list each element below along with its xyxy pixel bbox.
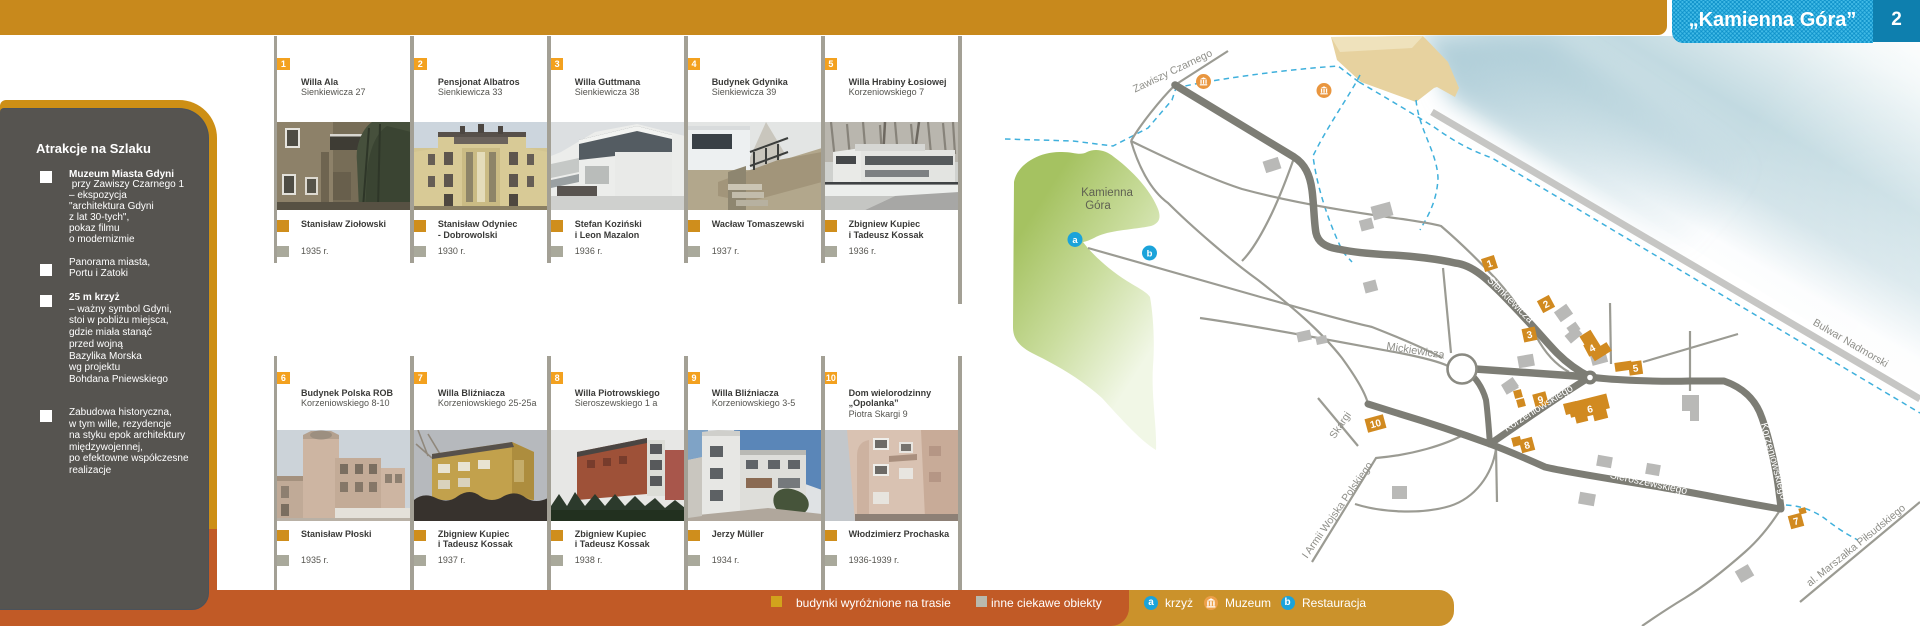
svg-text:Kamienna: Kamienna: [1081, 187, 1133, 199]
svg-text:Sienkiewicza: Sienkiewicza: [1484, 274, 1536, 326]
svg-text:al. Marszałka Piłsudskiego: al. Marszałka Piłsudskiego: [1804, 502, 1908, 589]
svg-text:a: a: [1072, 235, 1078, 246]
svg-text:Góra: Góra: [1085, 200, 1111, 212]
svg-text:I Armii Wojska Polskiego: I Armii Wojska Polskiego: [1300, 460, 1376, 561]
svg-text:Korzeniowskiego: Korzeniowskiego: [1758, 421, 1790, 501]
svg-text:b: b: [1147, 249, 1153, 260]
svg-text:Mickiewicza: Mickiewicza: [1386, 341, 1447, 362]
